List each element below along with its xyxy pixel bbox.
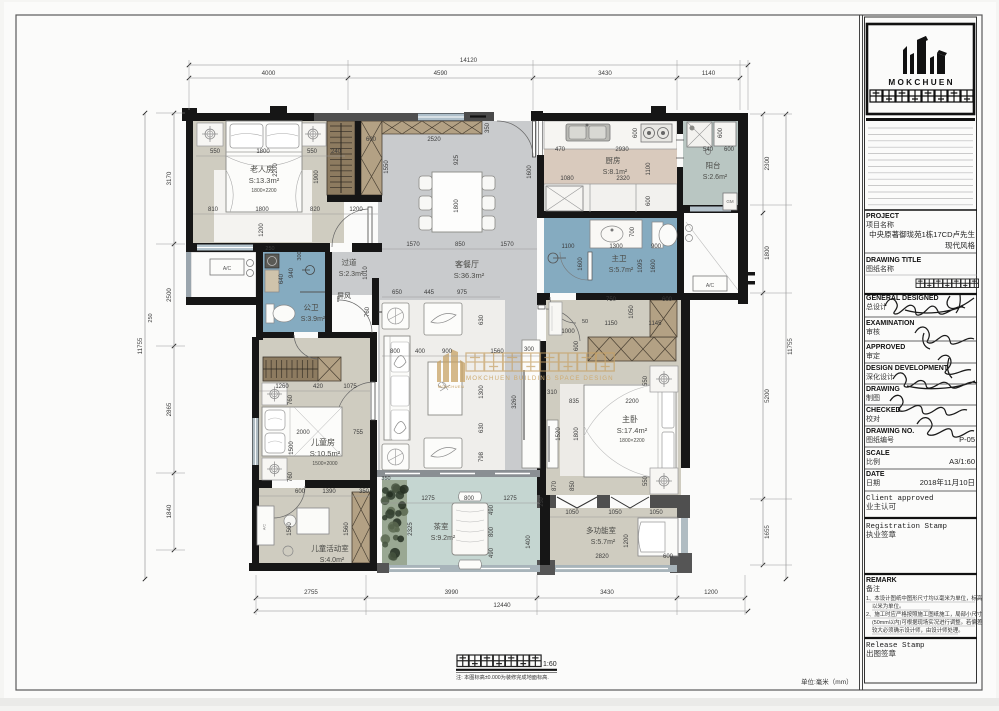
svg-text:2000: 2000 — [296, 430, 310, 436]
svg-text:900: 900 — [442, 349, 453, 355]
svg-text:制图: 制图 — [866, 393, 880, 402]
svg-text:比例: 比例 — [866, 457, 880, 466]
svg-text:1800: 1800 — [574, 427, 580, 441]
svg-text:300: 300 — [297, 251, 303, 260]
svg-text:1050: 1050 — [565, 510, 579, 516]
svg-text:S:5.7m²: S:5.7m² — [609, 267, 634, 274]
svg-text:1200: 1200 — [259, 223, 265, 237]
svg-text:550: 550 — [307, 149, 318, 155]
svg-text:350: 350 — [381, 476, 390, 482]
svg-text:3430: 3430 — [600, 589, 614, 596]
svg-text:1600: 1600 — [578, 257, 584, 271]
svg-text:600: 600 — [366, 137, 377, 143]
svg-text:820: 820 — [310, 207, 321, 213]
svg-text:1800: 1800 — [255, 207, 269, 213]
svg-text:1800: 1800 — [454, 199, 460, 213]
svg-text:2820: 2820 — [595, 554, 609, 560]
svg-text:1275: 1275 — [503, 496, 517, 502]
svg-text:800: 800 — [390, 349, 401, 355]
svg-text:主卧: 主卧 — [622, 414, 638, 424]
svg-text:图纸编号: 图纸编号 — [866, 435, 894, 444]
svg-text:1300: 1300 — [479, 385, 485, 399]
svg-text:3990: 3990 — [445, 589, 459, 596]
svg-text:1500: 1500 — [289, 441, 295, 455]
svg-text:600: 600 — [646, 195, 652, 206]
svg-text:850: 850 — [455, 242, 466, 248]
svg-text:835: 835 — [569, 399, 580, 405]
svg-text:600: 600 — [662, 297, 673, 303]
svg-text:SCALE: SCALE — [866, 450, 890, 457]
svg-text:2755: 2755 — [304, 589, 318, 596]
svg-text:5200: 5200 — [764, 389, 771, 403]
svg-text:MOKCHUEN BUILDING SPACE DESIGN: MOKCHUEN BUILDING SPACE DESIGN — [466, 375, 614, 382]
svg-text:多功能室: 多功能室 — [586, 525, 616, 535]
svg-text:600: 600 — [633, 127, 639, 138]
svg-text:1145: 1145 — [649, 321, 663, 327]
svg-text:S:17.4m²: S:17.4m² — [617, 426, 648, 435]
svg-text:DRAWING TITLE: DRAWING TITLE — [866, 257, 922, 264]
svg-text:1050: 1050 — [608, 510, 622, 516]
svg-text:900: 900 — [651, 244, 662, 250]
svg-text:校对: 校对 — [866, 414, 880, 423]
svg-text:A/C: A/C — [706, 283, 715, 289]
svg-text:DRAWING: DRAWING — [866, 386, 900, 393]
svg-text:CHECKED: CHECKED — [866, 407, 901, 414]
svg-text:S:2.6m²: S:2.6m² — [703, 174, 728, 181]
svg-text:图纸名称: 图纸名称 — [866, 264, 894, 273]
svg-text:1800×2200: 1800×2200 — [619, 438, 644, 444]
svg-text:800: 800 — [489, 526, 495, 537]
svg-text:250: 250 — [539, 497, 545, 506]
svg-text:GENERAL DESIGNED: GENERAL DESIGNED — [866, 295, 939, 302]
svg-text:1840: 1840 — [166, 504, 173, 518]
svg-text:1200: 1200 — [704, 589, 718, 596]
svg-text:310: 310 — [547, 390, 558, 396]
svg-text:14120: 14120 — [460, 57, 478, 64]
svg-text:250: 250 — [148, 313, 154, 322]
svg-text:A/C: A/C — [263, 524, 267, 531]
svg-text:650: 650 — [392, 290, 403, 296]
svg-text:1800: 1800 — [256, 149, 270, 155]
svg-text:600: 600 — [724, 147, 735, 153]
svg-text:中央原著御珑苑1栋17CD卢先生: 中央原著御珑苑1栋17CD卢先生 — [869, 229, 975, 239]
svg-text:1300: 1300 — [609, 244, 623, 250]
svg-text:1570: 1570 — [406, 242, 420, 248]
svg-text:3260: 3260 — [512, 395, 518, 409]
svg-text:日期: 日期 — [866, 479, 880, 487]
svg-text:1400: 1400 — [526, 535, 532, 549]
svg-text:50: 50 — [582, 319, 588, 325]
svg-text:760: 760 — [288, 394, 294, 405]
svg-text:240: 240 — [331, 149, 342, 155]
svg-text:1260: 1260 — [275, 384, 289, 390]
svg-text:1150: 1150 — [605, 321, 619, 327]
svg-text:2865: 2865 — [166, 402, 173, 416]
svg-text:审核: 审核 — [866, 327, 880, 336]
svg-text:350: 350 — [359, 489, 370, 495]
svg-text:APPROVED: APPROVED — [866, 344, 905, 351]
svg-text:400: 400 — [415, 349, 426, 355]
svg-text:630: 630 — [479, 314, 485, 325]
svg-text:975: 975 — [457, 290, 468, 296]
svg-text:较大必须确示设计师，由设计师处理。: 较大必须确示设计师，由设计师处理。 — [872, 626, 964, 634]
svg-text:11755: 11755 — [137, 337, 144, 354]
svg-text:S:36.3m²: S:36.3m² — [454, 271, 485, 280]
svg-text:1140: 1140 — [702, 70, 716, 77]
svg-text:2325: 2325 — [408, 522, 414, 536]
svg-text:1100: 1100 — [646, 162, 652, 176]
svg-text:1200: 1200 — [624, 534, 630, 548]
svg-text:1600: 1600 — [651, 259, 657, 273]
svg-text:1550: 1550 — [384, 160, 390, 174]
svg-text:DESIGN DEVELOPMENT: DESIGN DEVELOPMENT — [866, 365, 949, 372]
svg-text:出图签章: 出图签章 — [866, 648, 896, 658]
svg-text:2300: 2300 — [764, 156, 771, 170]
svg-text:项目名称: 项目名称 — [866, 220, 894, 229]
svg-text:1500×2000: 1500×2000 — [312, 461, 337, 467]
svg-text:主卫: 主卫 — [612, 253, 627, 263]
svg-text:1080: 1080 — [560, 176, 574, 182]
svg-text:1075: 1075 — [343, 384, 357, 390]
svg-text:870: 870 — [552, 480, 558, 491]
svg-text:600: 600 — [663, 554, 674, 560]
svg-text:屏风: 屏风 — [337, 292, 351, 300]
svg-text:3430: 3430 — [598, 70, 612, 77]
svg-text:DATE: DATE — [866, 471, 885, 478]
svg-text:1600: 1600 — [527, 165, 533, 179]
svg-text:注: 本图标高±0.000为装修完成地面标高.: 注: 本图标高±0.000为装修完成地面标高. — [456, 673, 549, 681]
svg-text:3170: 3170 — [166, 171, 173, 185]
svg-text:755: 755 — [353, 430, 364, 436]
svg-text:S:4.0m²: S:4.0m² — [320, 557, 345, 564]
svg-text:550: 550 — [643, 375, 649, 386]
svg-text:P-05: P-05 — [959, 435, 975, 444]
svg-text:2200: 2200 — [625, 399, 639, 405]
svg-text:以米为单位。: 以米为单位。 — [872, 602, 904, 610]
svg-text:540: 540 — [703, 147, 714, 153]
svg-text:750: 750 — [606, 297, 617, 303]
svg-text:老人房: 老人房 — [250, 164, 274, 174]
svg-text:700: 700 — [630, 226, 636, 237]
svg-text:2930: 2930 — [615, 147, 629, 153]
svg-text:2320: 2320 — [616, 176, 630, 182]
svg-text:儿童房: 儿童房 — [311, 437, 335, 447]
svg-text:茶室: 茶室 — [434, 521, 449, 531]
svg-text:550: 550 — [210, 149, 221, 155]
svg-text:1275: 1275 — [421, 496, 435, 502]
svg-text:MOKCHUEN: MOKCHUEN — [438, 384, 465, 389]
svg-text:600: 600 — [574, 340, 580, 351]
svg-text:4000: 4000 — [262, 70, 276, 77]
svg-text:850: 850 — [570, 480, 576, 491]
svg-text:(50mm以内)可根据现场实况进行调整。若偏差: (50mm以内)可根据现场实况进行调整。若偏差 — [872, 618, 983, 626]
svg-text:阳台: 阳台 — [706, 160, 721, 170]
svg-text:M O K C H U E N: M O K C H U E N — [888, 78, 952, 87]
svg-text:客餐厅: 客餐厅 — [455, 259, 479, 269]
svg-text:798: 798 — [479, 451, 485, 462]
svg-text:11755: 11755 — [787, 338, 794, 355]
svg-text:2018年11月10日: 2018年11月10日 — [920, 477, 975, 487]
svg-text:600: 600 — [295, 489, 306, 495]
svg-text:1570: 1570 — [500, 242, 514, 248]
svg-text:A/C: A/C — [223, 266, 232, 272]
svg-text:1:60: 1:60 — [543, 661, 557, 668]
svg-text:S:8.1m²: S:8.1m² — [603, 169, 628, 176]
svg-text:深化设计: 深化设计 — [866, 372, 894, 381]
svg-text:现代风格: 现代风格 — [945, 240, 975, 250]
svg-text:12440: 12440 — [493, 602, 511, 609]
svg-text:445: 445 — [424, 290, 435, 296]
svg-text:490: 490 — [489, 504, 495, 515]
svg-text:600: 600 — [718, 127, 724, 138]
svg-text:1560: 1560 — [287, 522, 293, 536]
svg-text:300: 300 — [524, 347, 535, 353]
svg-text:A3/1:60: A3/1:60 — [949, 457, 975, 466]
svg-text:630: 630 — [479, 422, 485, 433]
svg-text:REMARK: REMARK — [866, 577, 897, 584]
svg-text:550: 550 — [643, 475, 649, 486]
svg-text:1900: 1900 — [314, 170, 320, 184]
svg-text:1050: 1050 — [629, 305, 635, 319]
svg-text:DRAWING NO.: DRAWING NO. — [866, 428, 914, 435]
svg-text:PROJECT: PROJECT — [866, 213, 900, 220]
svg-text:GM: GM — [726, 199, 734, 204]
svg-text:S:10.5m²: S:10.5m² — [310, 449, 341, 458]
svg-text:800: 800 — [464, 496, 475, 502]
svg-text:2、施工时应严格按照施工图纸施工，局部小尺寸: 2、施工时应严格按照施工图纸施工，局部小尺寸 — [866, 610, 983, 618]
svg-text:2200: 2200 — [273, 163, 279, 177]
svg-text:490: 490 — [489, 547, 495, 558]
svg-text:1560: 1560 — [490, 349, 504, 355]
svg-text:过道: 过道 — [342, 257, 357, 267]
svg-text:EXAMINATION: EXAMINATION — [866, 320, 914, 327]
svg-text:厨房: 厨房 — [606, 155, 621, 165]
svg-text:1100: 1100 — [562, 244, 576, 250]
svg-text:1655: 1655 — [764, 525, 771, 539]
svg-text:S:9.2m²: S:9.2m² — [431, 535, 456, 542]
svg-text:S:2.3m²: S:2.3m² — [339, 271, 364, 278]
svg-text:1、本设计图纸中图形尺寸均以毫米为单位，标高: 1、本设计图纸中图形尺寸均以毫米为单位，标高 — [866, 594, 983, 602]
svg-text:760: 760 — [365, 306, 371, 317]
svg-text:1050: 1050 — [649, 510, 663, 516]
svg-text:350: 350 — [485, 122, 491, 133]
svg-text:1560: 1560 — [344, 522, 350, 536]
svg-text:1800×2200: 1800×2200 — [251, 188, 276, 194]
svg-text:420: 420 — [313, 384, 324, 390]
svg-text:S:5.7m²: S:5.7m² — [591, 539, 616, 546]
svg-text:执业签章: 执业签章 — [866, 529, 896, 539]
svg-text:640: 640 — [279, 273, 285, 284]
svg-text:1520: 1520 — [556, 427, 562, 441]
svg-text:470: 470 — [555, 147, 566, 153]
svg-text:810: 810 — [208, 207, 219, 213]
svg-text:2500: 2500 — [166, 288, 173, 302]
svg-text:1000: 1000 — [561, 329, 575, 335]
svg-text:250: 250 — [265, 246, 274, 252]
svg-text:S:3.9m²: S:3.9m² — [301, 316, 326, 323]
svg-text:备注: 备注 — [866, 584, 880, 593]
svg-text:业主认可: 业主认可 — [866, 501, 896, 511]
svg-text:公卫: 公卫 — [304, 303, 319, 312]
svg-text:2520: 2520 — [427, 137, 441, 143]
svg-text:总设计: 总设计 — [866, 302, 887, 311]
svg-text:单位:毫米（mm）: 单位:毫米（mm） — [801, 677, 853, 686]
svg-text:1095: 1095 — [638, 259, 644, 273]
svg-text:940: 940 — [289, 267, 295, 278]
svg-text:审定: 审定 — [866, 351, 880, 360]
svg-text:4590: 4590 — [434, 70, 448, 77]
svg-text:1390: 1390 — [322, 489, 336, 495]
svg-text:儿童活动室: 儿童活动室 — [311, 543, 349, 553]
svg-text:760: 760 — [288, 471, 294, 482]
svg-text:1200: 1200 — [349, 207, 363, 213]
svg-text:925: 925 — [454, 154, 460, 165]
svg-text:1010: 1010 — [363, 266, 369, 280]
svg-text:1800: 1800 — [764, 246, 771, 260]
